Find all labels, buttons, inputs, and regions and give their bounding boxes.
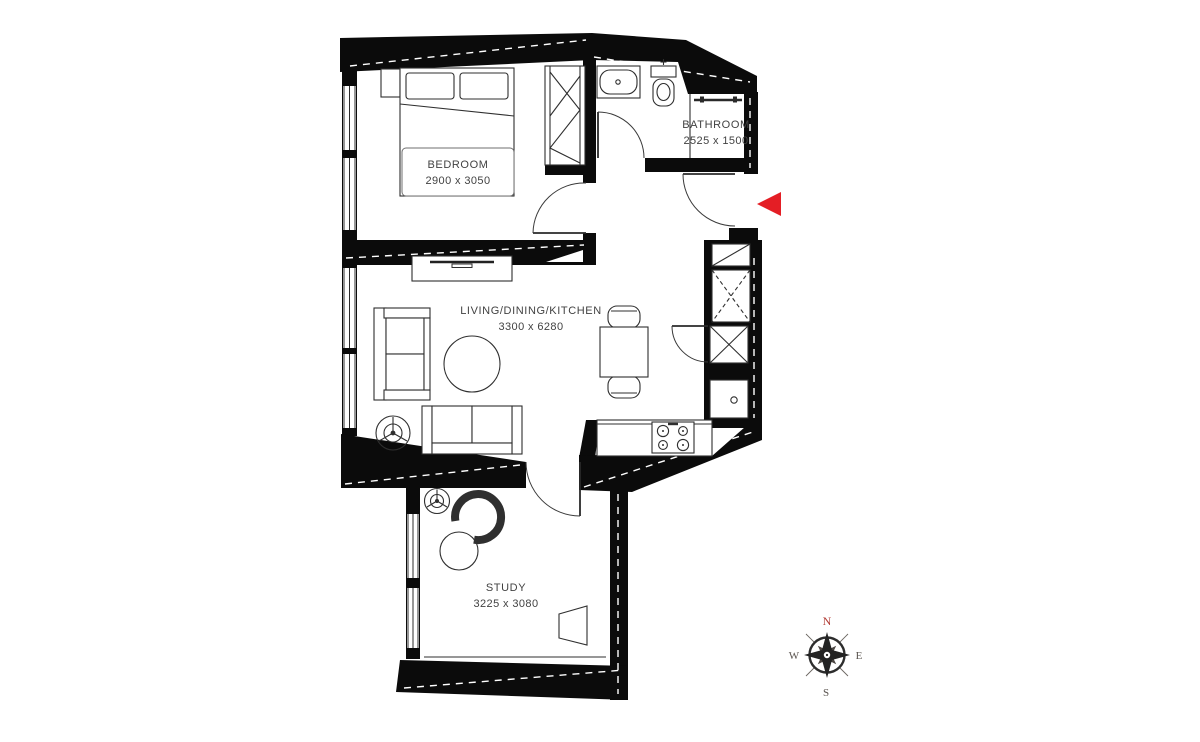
- study-dimensions: 3225 x 3080: [474, 598, 539, 610]
- desk-chair: [455, 494, 501, 540]
- dining-chair: [608, 376, 640, 398]
- pillow: [460, 73, 508, 99]
- wardrobe: [545, 66, 585, 165]
- bathroom-door: [598, 112, 644, 158]
- window-living-1: [343, 268, 356, 348]
- wall-bathroom-bottom: [645, 158, 744, 172]
- sink-unit: [710, 380, 748, 418]
- window-bedroom-1: [343, 86, 356, 150]
- round-rug: [444, 336, 500, 392]
- bathroom-label: BATHROOM: [682, 119, 750, 131]
- study-label: STUDY: [486, 582, 526, 594]
- bedroom-door: [533, 183, 586, 233]
- compass-s: S: [823, 687, 829, 699]
- bedroom-label-plate: [402, 148, 514, 196]
- window-study-1: [407, 514, 419, 578]
- window-bedroom-2: [343, 158, 356, 230]
- tall-cabinet: [712, 270, 750, 322]
- bathroom-dimensions: 2525 x 1500: [684, 135, 749, 147]
- floor-plan-svg: BEDROOM 2900 x 3050 BATHR: [0, 0, 1200, 742]
- compass-n: N: [823, 614, 832, 628]
- wall-shelf: [559, 606, 587, 645]
- living-dimensions: 3300 x 6280: [499, 321, 564, 333]
- sofa-main: [422, 406, 522, 454]
- bedroom-dimensions: 2900 x 3050: [426, 175, 491, 187]
- compass-e: E: [856, 650, 863, 662]
- study-door: [526, 462, 580, 516]
- entrance-door: [683, 174, 735, 226]
- dining-table: [600, 327, 648, 377]
- window-study-2: [407, 588, 419, 648]
- round-table: [440, 532, 478, 570]
- wall-study-bottom: [396, 660, 628, 700]
- living-dining-kitchen: LIVING/DINING/KITCHEN 3300 x 6280: [374, 244, 750, 456]
- plant-small: [425, 489, 450, 514]
- entrance-marker: [757, 192, 781, 216]
- study: STUDY 3225 x 3080: [424, 489, 606, 658]
- hob: [652, 422, 694, 453]
- nightstand: [381, 69, 400, 97]
- wall-wardrobe-bottom: [545, 165, 586, 175]
- window-living-2: [343, 354, 356, 428]
- living-label: LIVING/DINING/KITCHEN: [460, 305, 602, 317]
- tv-console: [412, 256, 512, 281]
- wall-hall-left-lower: [583, 233, 596, 265]
- bathtub: [597, 66, 640, 98]
- compass-rose: N E S W: [789, 614, 863, 699]
- dining-chair: [608, 306, 640, 328]
- kitchen-shelf-unit: [712, 244, 750, 266]
- dining-set: [600, 306, 648, 398]
- page: BEDROOM 2900 x 3050 BATHR: [0, 0, 1200, 742]
- towel-radiator: [694, 97, 742, 103]
- bedroom: BEDROOM 2900 x 3050: [381, 66, 585, 196]
- sofa-side: [374, 308, 430, 400]
- wall-right-alcove: [744, 92, 758, 174]
- bedroom-label: BEDROOM: [427, 159, 488, 171]
- toilet: [651, 59, 676, 106]
- compass-w: W: [789, 650, 800, 662]
- pillow: [406, 73, 454, 99]
- utility-door: [672, 326, 708, 362]
- appliance: [710, 326, 748, 363]
